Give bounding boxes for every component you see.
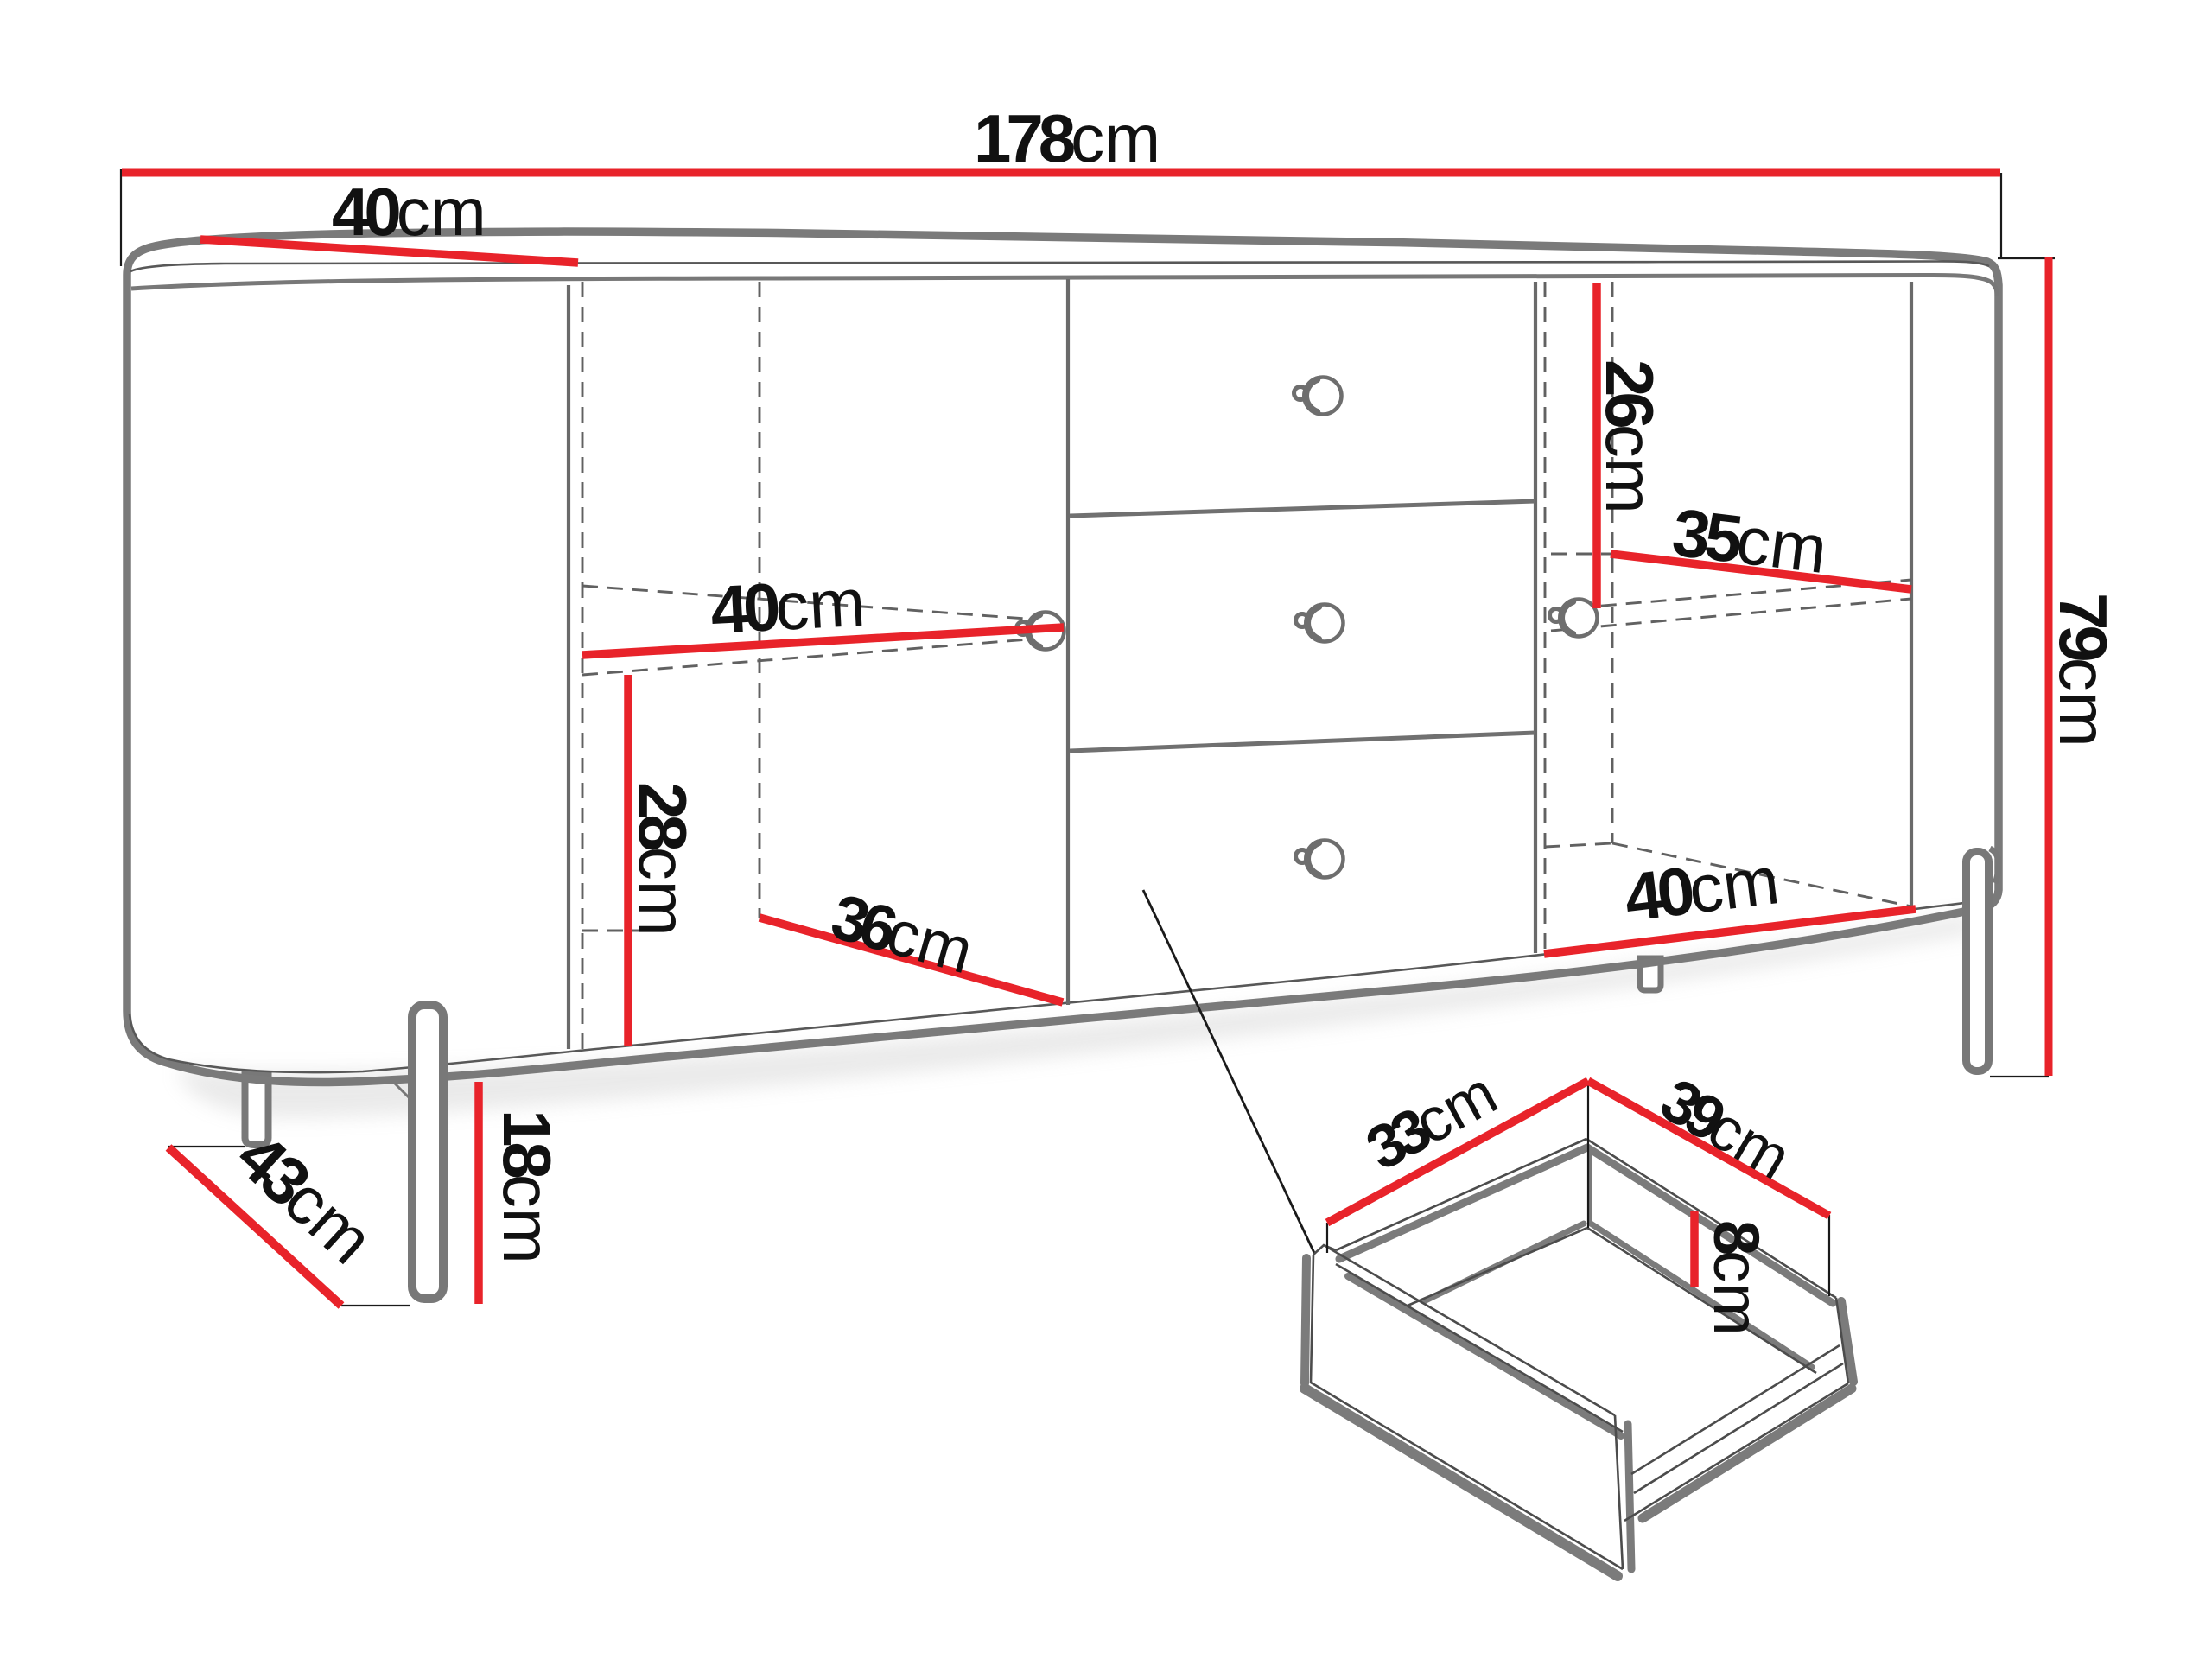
svg-text:40cm: 40cm <box>332 174 486 250</box>
svg-text:40cm: 40cm <box>709 564 867 648</box>
svg-text:18cm: 18cm <box>489 1109 565 1264</box>
svg-text:79cm: 79cm <box>2045 593 2121 747</box>
svg-text:8cm: 8cm <box>1700 1220 1772 1336</box>
svg-text:178cm: 178cm <box>974 100 1160 176</box>
svg-text:26cm: 26cm <box>1592 359 1668 514</box>
svg-text:28cm: 28cm <box>625 782 701 937</box>
